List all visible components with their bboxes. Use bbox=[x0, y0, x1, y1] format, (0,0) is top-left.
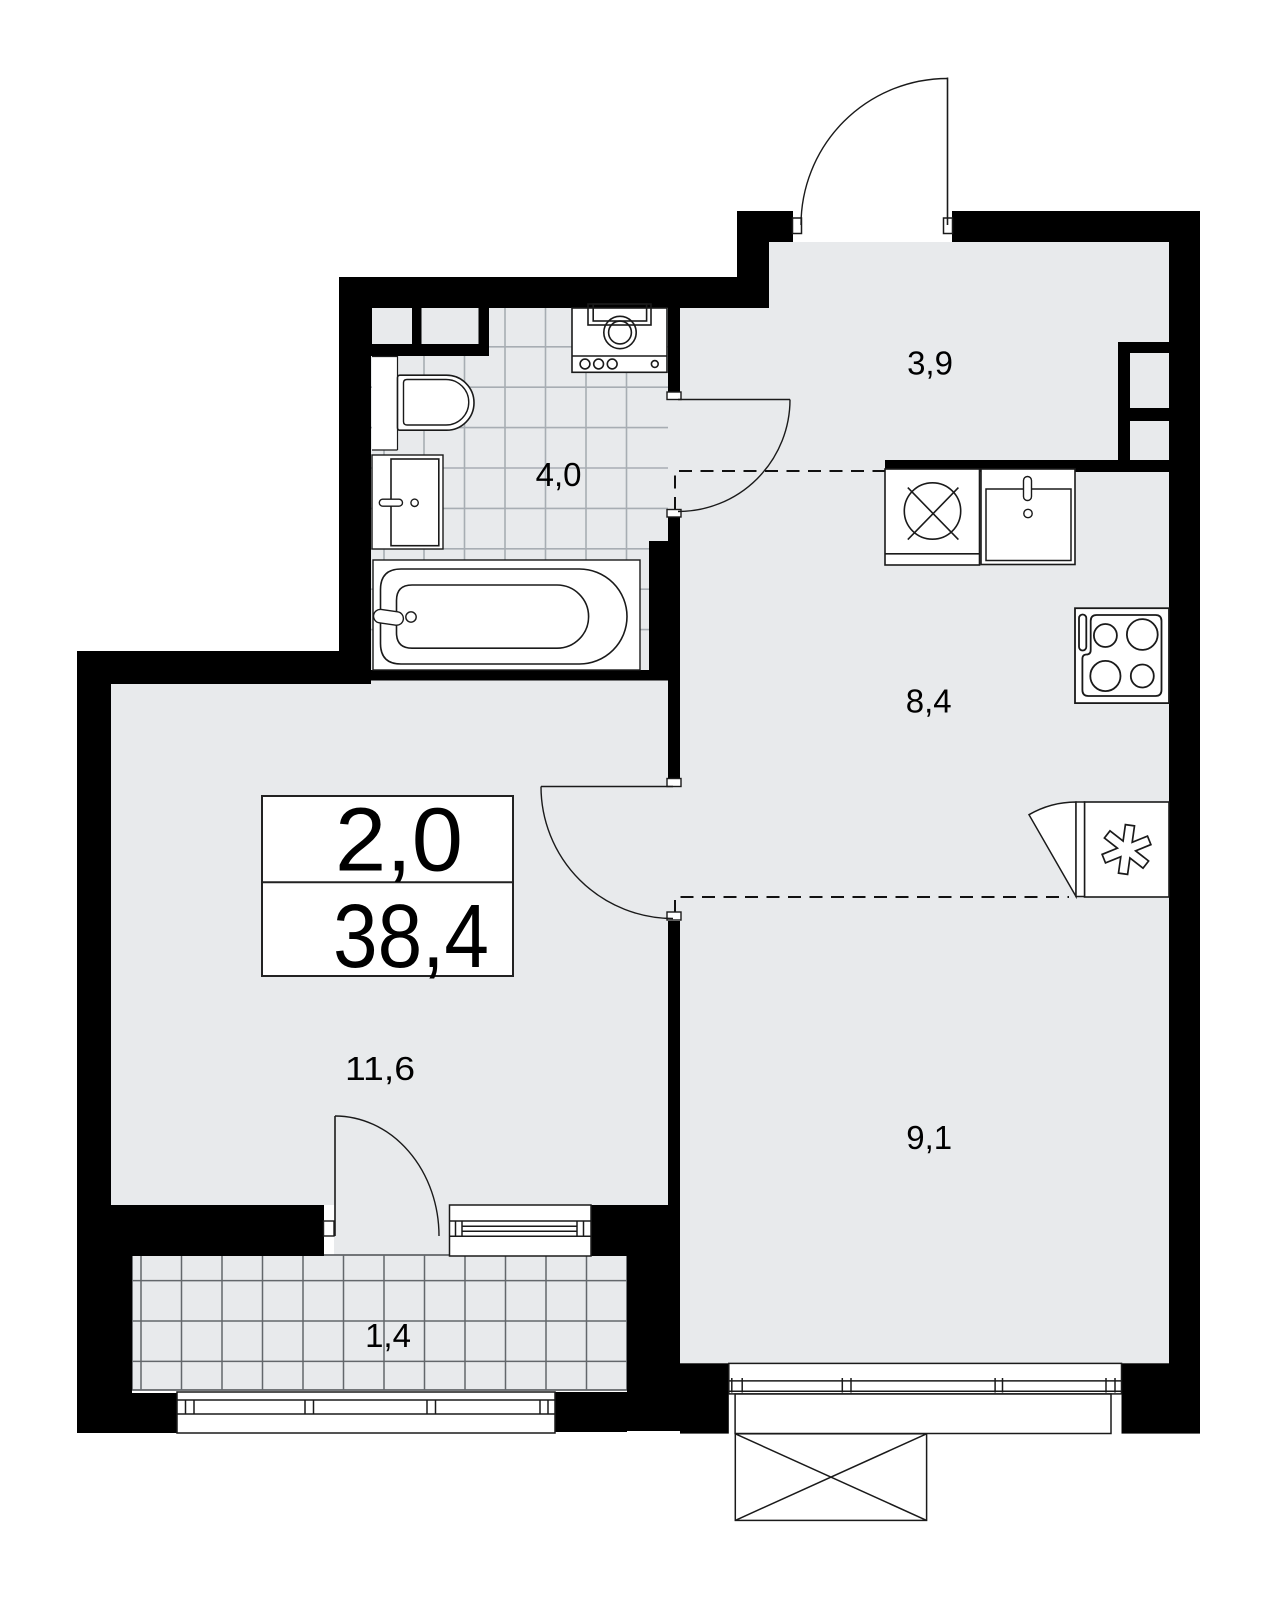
svg-text:4,0: 4,0 bbox=[536, 456, 582, 493]
svg-text:1,4: 1,4 bbox=[365, 1317, 411, 1354]
svg-text:11,6: 11,6 bbox=[345, 1050, 415, 1087]
svg-text:9,1: 9,1 bbox=[906, 1119, 952, 1156]
svg-text:8,4: 8,4 bbox=[906, 683, 952, 720]
svg-text:3,9: 3,9 bbox=[907, 345, 953, 382]
svg-text:38,4: 38,4 bbox=[333, 887, 489, 987]
svg-text:2,0: 2,0 bbox=[335, 791, 463, 891]
